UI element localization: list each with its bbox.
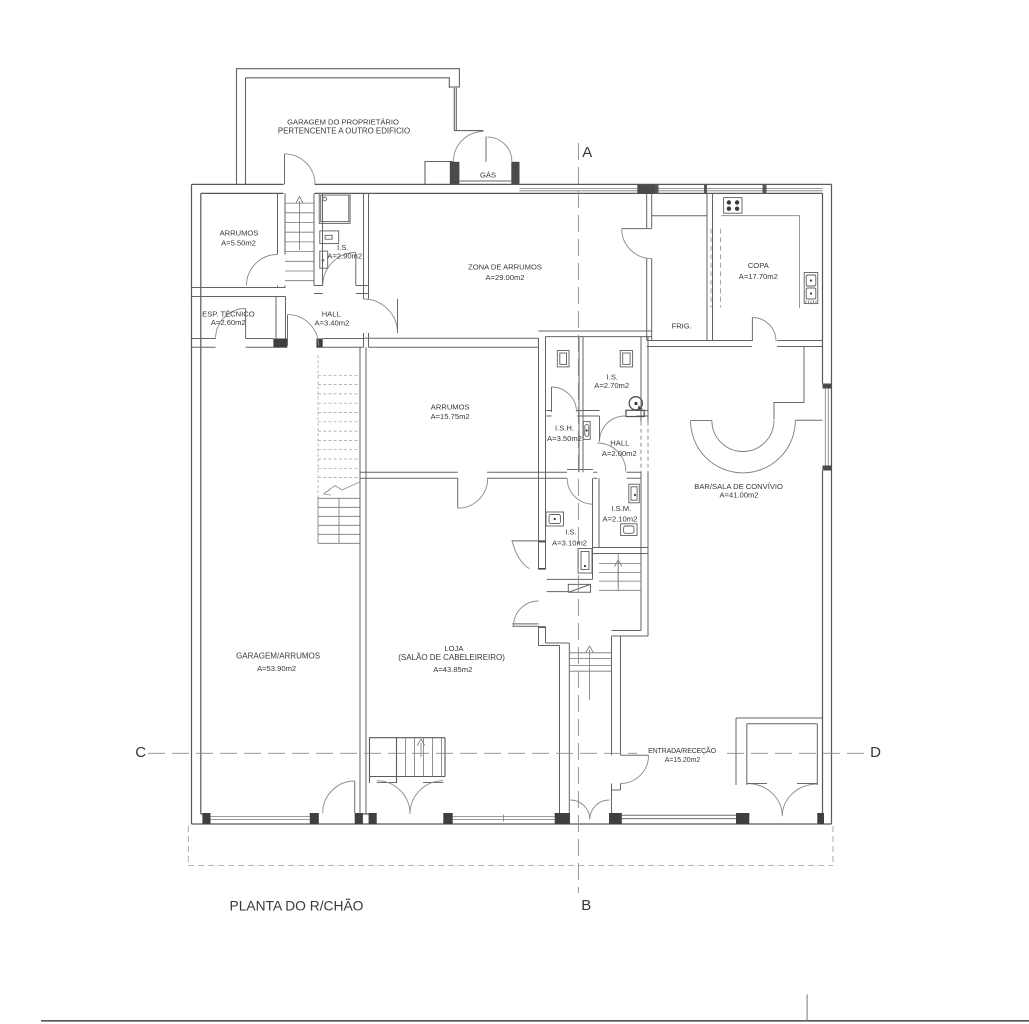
svg-text:ZONA DE ARRUMOS: ZONA DE ARRUMOS bbox=[468, 262, 542, 271]
svg-text:GARAGEM/ARRUMOS: GARAGEM/ARRUMOS bbox=[236, 651, 320, 660]
svg-text:(SALÃO DE CABELEIREIRO): (SALÃO DE CABELEIREIRO) bbox=[398, 653, 505, 662]
svg-text:I.S.: I.S. bbox=[607, 372, 618, 381]
svg-text:A=53.90m2: A=53.90m2 bbox=[257, 664, 296, 673]
svg-text:FRIG.: FRIG. bbox=[672, 321, 692, 330]
svg-text:A=17.70m2: A=17.70m2 bbox=[739, 272, 778, 281]
svg-text:A=3.40m2: A=3.40m2 bbox=[314, 318, 349, 327]
svg-text:A=43.85m2: A=43.85m2 bbox=[433, 665, 472, 674]
svg-text:I.S.M.: I.S.M. bbox=[611, 504, 631, 513]
svg-text:A=2.00m2: A=2.00m2 bbox=[602, 449, 637, 458]
svg-text:PLANTA DO R/CHÃO: PLANTA DO R/CHÃO bbox=[230, 898, 364, 914]
svg-text:COPA: COPA bbox=[748, 261, 770, 270]
svg-text:LOJA: LOJA bbox=[444, 644, 464, 653]
svg-text:A=15.75m2: A=15.75m2 bbox=[431, 412, 470, 421]
svg-text:A=2.90m2: A=2.90m2 bbox=[327, 252, 362, 261]
svg-text:PERTENCENTE A OUTRO EDIFICIO: PERTENCENTE A OUTRO EDIFICIO bbox=[278, 127, 410, 136]
svg-text:A=29.00m2: A=29.00m2 bbox=[485, 273, 524, 282]
svg-text:B: B bbox=[581, 897, 591, 914]
svg-text:HALL: HALL bbox=[610, 439, 629, 448]
svg-text:A=2.10m2: A=2.10m2 bbox=[602, 514, 637, 523]
svg-text:GÁS: GÁS bbox=[480, 171, 496, 180]
svg-text:A=3.10m2: A=3.10m2 bbox=[552, 538, 587, 547]
svg-text:A=3.50m2: A=3.50m2 bbox=[547, 434, 582, 443]
svg-text:A=2.70m2: A=2.70m2 bbox=[594, 381, 629, 390]
svg-text:ARRUMOS: ARRUMOS bbox=[220, 229, 259, 238]
svg-text:A=41.00m2: A=41.00m2 bbox=[719, 491, 758, 500]
svg-text:A=15.20m2: A=15.20m2 bbox=[665, 757, 701, 764]
svg-text:I.S.: I.S. bbox=[565, 528, 576, 537]
svg-text:ENTRADA/RECEÇÃO: ENTRADA/RECEÇÃO bbox=[648, 746, 716, 755]
svg-text:I.S.: I.S. bbox=[337, 243, 348, 252]
svg-text:C: C bbox=[135, 744, 146, 761]
svg-text:GARAGEM DO PROPRIETÁRIO: GARAGEM DO PROPRIETÁRIO bbox=[287, 118, 399, 127]
svg-text:I.S.H.: I.S.H. bbox=[555, 424, 574, 433]
svg-text:A: A bbox=[582, 144, 592, 161]
svg-text:A=2.60m2: A=2.60m2 bbox=[211, 318, 246, 327]
svg-text:ARRUMOS: ARRUMOS bbox=[431, 403, 470, 412]
svg-text:HALL: HALL bbox=[322, 309, 341, 318]
svg-text:D: D bbox=[870, 744, 881, 761]
svg-text:A=5.50m2: A=5.50m2 bbox=[221, 239, 256, 248]
